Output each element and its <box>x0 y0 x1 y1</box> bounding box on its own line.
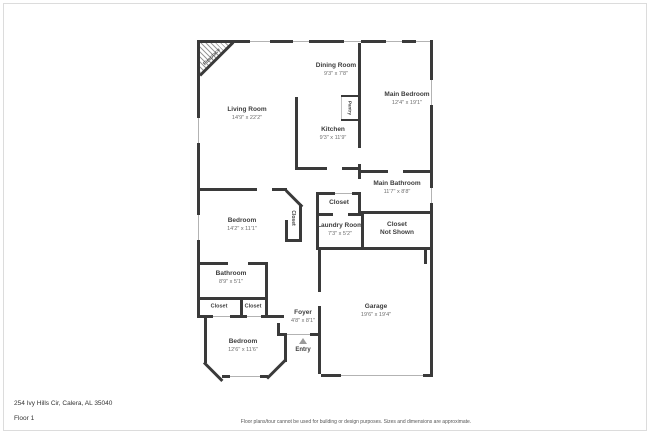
window <box>293 40 309 43</box>
window <box>250 40 270 43</box>
wall-segment <box>268 315 284 318</box>
window <box>197 215 200 240</box>
wall-segment <box>197 143 200 215</box>
room-name: Bedroom <box>228 338 258 346</box>
room-label-bedroom-2: Bedroom 12'6" x 11'6" <box>228 338 258 354</box>
garage-door <box>341 374 423 377</box>
room-name: Main Bathroom <box>373 180 420 188</box>
room-label-dining-room: Dining Room 9'3" x 7'8" <box>316 62 356 78</box>
wall-segment <box>316 192 319 250</box>
closet-door <box>213 315 230 318</box>
wall-segment <box>321 374 341 377</box>
room-label-main-bedroom: Main Bedroom 12'4" x 19'1" <box>384 91 429 107</box>
wall-segment <box>423 374 433 377</box>
room-label-kitchen: Kitchen 9'3" x 11'9" <box>320 126 347 142</box>
room-label-hall-closet: Closet <box>329 199 349 207</box>
room-label-foyer: Foyer 4'8" x 8'1" <box>291 309 315 325</box>
room-dims: 8'9" x 5'1" <box>216 279 247 286</box>
wall-segment <box>309 40 344 43</box>
wall-segment <box>197 40 200 118</box>
pantry-door <box>341 97 342 119</box>
room-name: Bedroom <box>227 217 257 225</box>
wall-segment <box>277 333 287 336</box>
room-name: Laundry Room <box>317 222 363 230</box>
floor-plan-page: Fireplace Living Room 14'9" x 22'2" Dini… <box>0 0 650 434</box>
wall-segment <box>222 375 230 378</box>
wall-segment <box>352 192 361 195</box>
wall-segment <box>197 297 267 300</box>
room-dims: 14'9" x 22'2" <box>227 115 266 122</box>
wall-segment <box>200 188 257 191</box>
wall-segment <box>424 250 427 264</box>
room-dims: 12'4" x 19'1" <box>384 100 429 107</box>
room-label-living-room: Living Room 14'9" x 22'2" <box>227 106 266 122</box>
room-name: Closet <box>211 304 228 311</box>
room-dims: 19'6" x 19'4" <box>361 312 391 319</box>
room-name: Foyer <box>291 309 315 317</box>
room-dims: 9'3" x 11'9" <box>320 135 347 142</box>
room-label-bedroom-closet: Closet <box>290 210 296 225</box>
room-label-garage: Garage 19'6" x 19'4" <box>361 303 391 319</box>
room-name: Not Shown <box>380 229 414 237</box>
room-name: Living Room <box>227 106 266 114</box>
room-dims: 4'8" x 8'1" <box>291 318 315 325</box>
room-dims: 9'3" x 7'8" <box>316 71 356 78</box>
wall-segment <box>261 315 268 318</box>
wall-segment <box>240 297 243 317</box>
wall-segment <box>285 239 302 242</box>
room-name: Main Bedroom <box>384 91 429 99</box>
wall-segment <box>430 40 433 80</box>
front-door <box>287 333 310 336</box>
wall-segment <box>319 247 430 250</box>
room-label-main-bathroom: Main Bathroom 11'7" x 8'8" <box>373 180 420 196</box>
room-label-bathroom: Bathroom 8'9" x 5'1" <box>216 270 247 286</box>
window <box>197 118 200 143</box>
room-name: Closet <box>380 221 414 229</box>
wall-segment <box>319 213 333 216</box>
wall-segment <box>295 167 327 170</box>
room-label-pantry: Pantry <box>348 101 353 115</box>
room-label-bedroom-1: Bedroom 14'2" x 11'1" <box>227 217 257 233</box>
room-name: Kitchen <box>320 126 347 134</box>
wall-segment <box>430 203 433 377</box>
wall-segment <box>361 40 386 43</box>
window <box>430 188 433 203</box>
wall-segment <box>358 43 361 148</box>
wall-segment <box>361 170 388 173</box>
closet-door <box>335 192 352 195</box>
window <box>230 375 260 378</box>
room-dims: 12'6" x 11'6" <box>228 347 258 354</box>
wall-segment <box>318 306 321 374</box>
wall-segment <box>197 240 200 318</box>
wall-segment <box>318 192 335 195</box>
floor-label: Floor 1 <box>14 415 34 422</box>
wall-segment <box>402 40 416 43</box>
room-dims: 14'2" x 11'1" <box>227 226 257 233</box>
room-label-closet-b: Closet <box>245 304 262 311</box>
wall-segment <box>295 97 298 167</box>
wall-segment <box>197 40 250 43</box>
window <box>416 40 430 43</box>
room-name: Bathroom <box>216 270 247 278</box>
wall-segment <box>358 170 361 179</box>
wall-segment <box>299 204 302 242</box>
window <box>430 80 433 105</box>
wall-segment <box>230 315 247 318</box>
closet-door <box>247 315 261 318</box>
room-name: Dining Room <box>316 62 356 70</box>
room-label-laundry-room: Laundry Room 7'3" x 5'2" <box>317 222 363 238</box>
wall-segment <box>265 262 268 317</box>
room-dims: 11'7" x 8'8" <box>373 189 420 196</box>
room-name: Closet <box>245 304 262 311</box>
wall-segment <box>204 318 207 363</box>
wall-segment <box>403 170 430 173</box>
wall-segment <box>361 211 430 214</box>
room-name: Closet <box>329 199 349 207</box>
entry-arrow-icon <box>299 338 307 344</box>
disclaimer-text: Floor plans/tour cannot be used for buil… <box>62 419 650 425</box>
room-dims: 7'3" x 5'2" <box>317 231 363 238</box>
window <box>386 40 402 43</box>
room-label-closet-a: Closet <box>211 304 228 311</box>
room-label-closet-not-shown: Closet Not Shown <box>380 221 414 237</box>
wall-segment <box>197 262 228 265</box>
wall-segment <box>430 105 433 188</box>
wall-segment <box>341 95 358 97</box>
room-label-entry: Entry <box>295 347 310 353</box>
wall-segment <box>341 119 358 121</box>
wall-segment <box>270 40 293 43</box>
room-name: Garage <box>361 303 391 311</box>
wall-segment <box>318 250 321 292</box>
address-text: 254 Ivy Hills Cir, Calera, AL 35040 <box>14 400 112 407</box>
